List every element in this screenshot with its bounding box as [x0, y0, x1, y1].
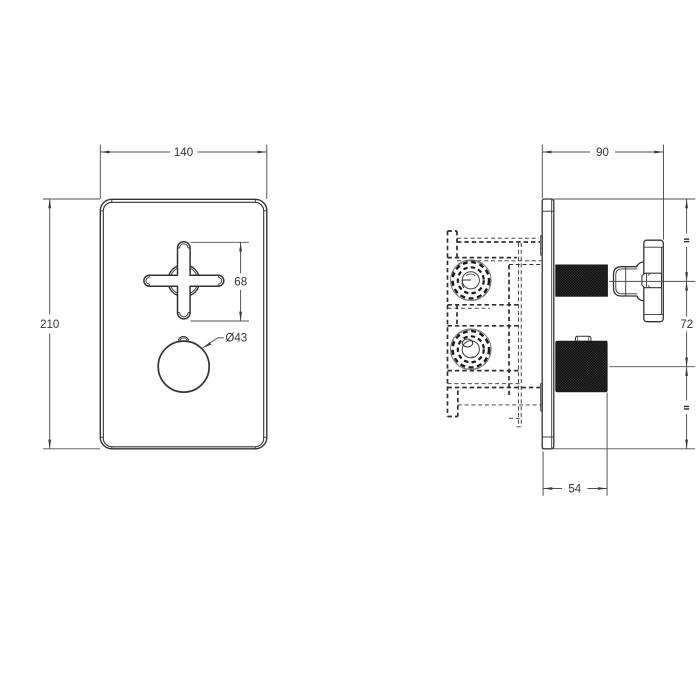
svg-text:72: 72 [680, 319, 693, 331]
svg-text:68: 68 [234, 277, 247, 289]
svg-text:Ø43: Ø43 [225, 333, 247, 345]
svg-text:210: 210 [40, 319, 59, 331]
svg-text:140: 140 [174, 147, 193, 159]
svg-text:90: 90 [596, 147, 609, 159]
svg-text:54: 54 [568, 484, 581, 496]
